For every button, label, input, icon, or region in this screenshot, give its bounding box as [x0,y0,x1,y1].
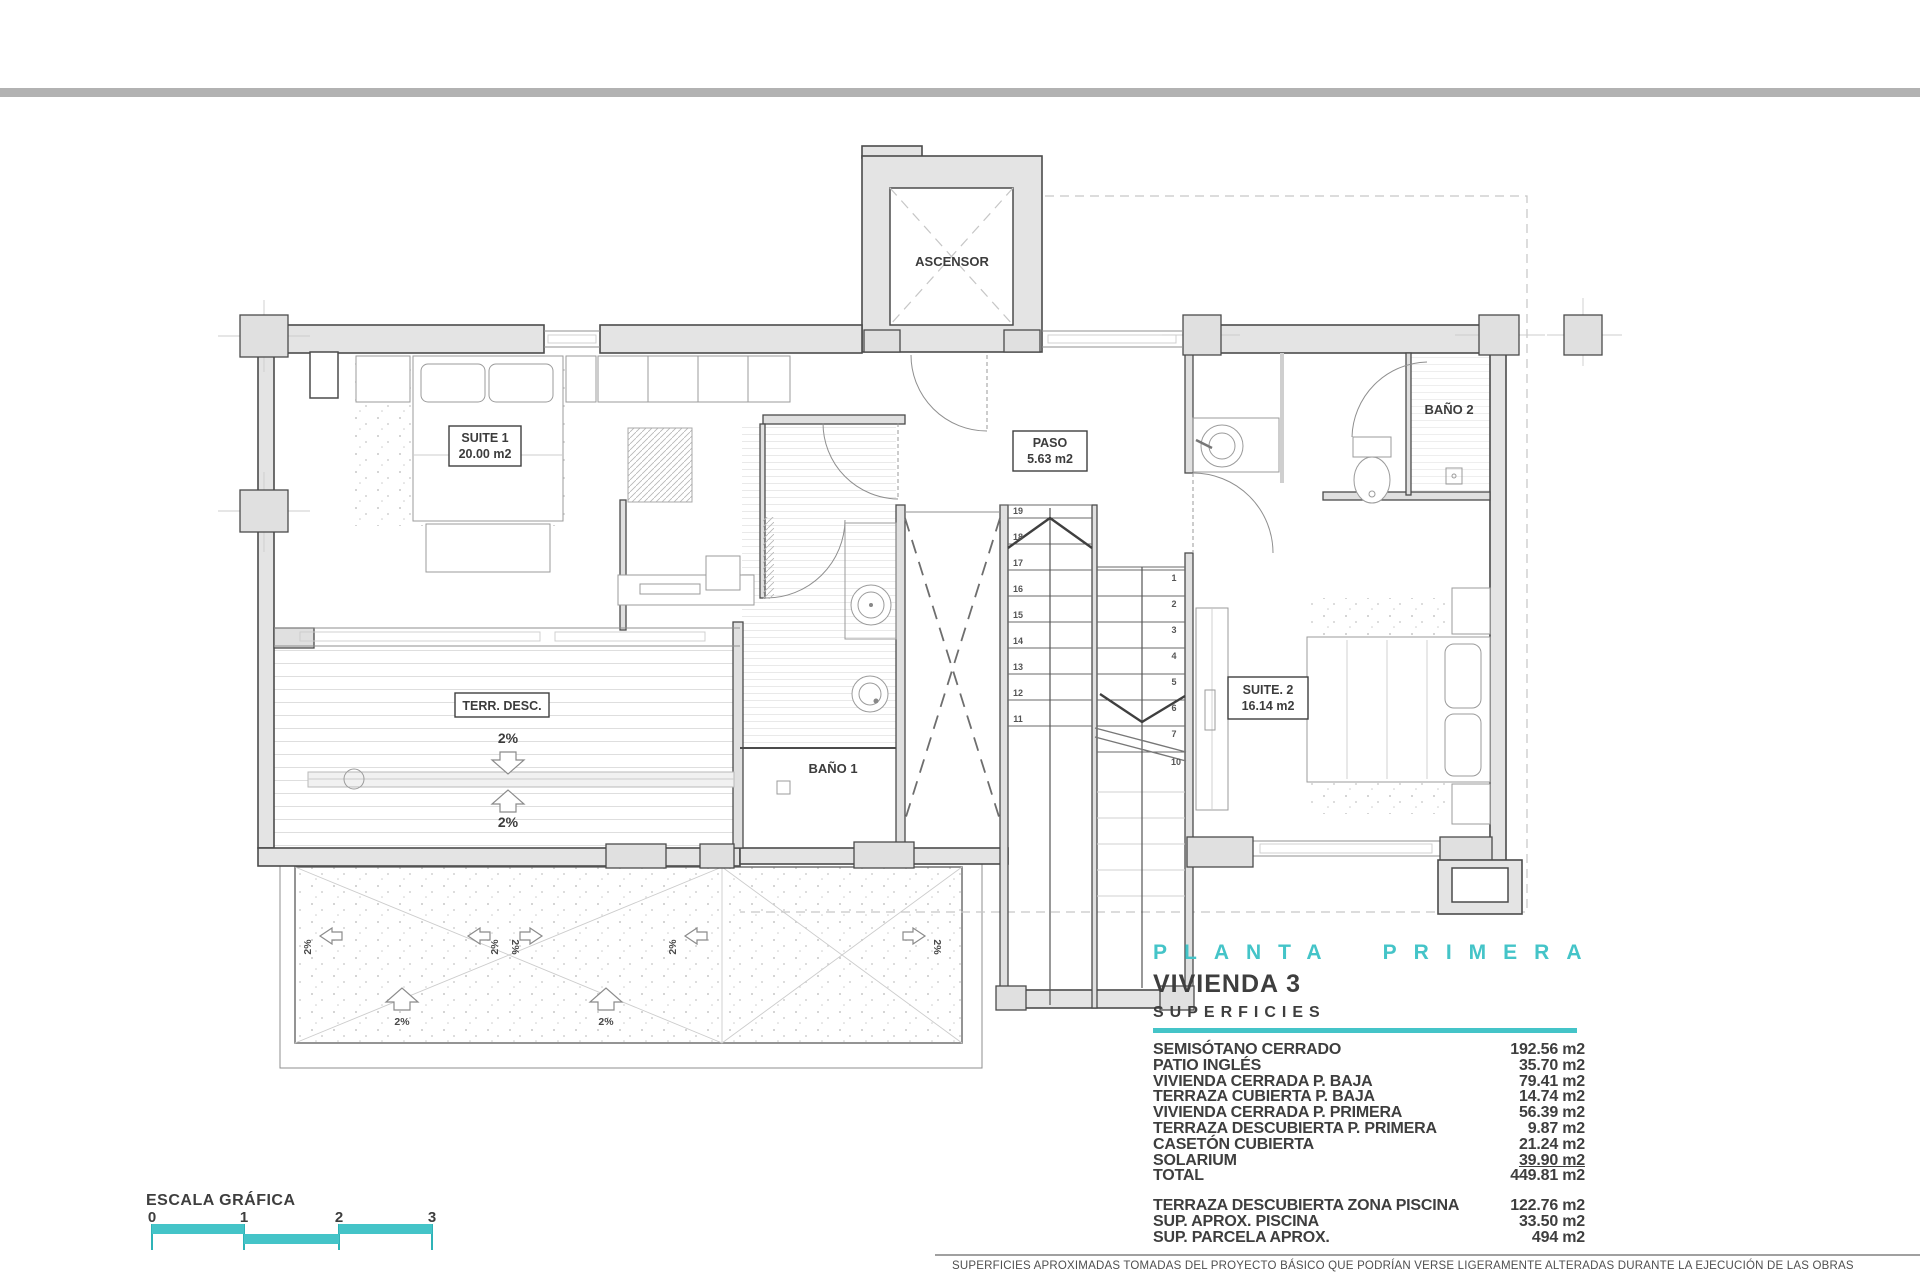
suite1-furniture [310,352,790,605]
table-row: VIVIENDA CERRADA P. PRIMERA56.39 m2 [1153,1105,1585,1121]
scale-bar: ESCALA GRÁFICA 0 1 2 3 [146,1192,466,1252]
table-row: PATIO INGLÉS35.70 m2 [1153,1058,1585,1074]
patio-slope-label: 2% [302,939,314,955]
table-row: SEMISÓTANO CERRADO192.56 m2 [1153,1042,1585,1058]
terrace-slope-label: 2% [498,730,519,746]
scale-segments [146,1224,466,1252]
table-row: SUP. PARCELA APROX.494 m2 [1153,1230,1585,1246]
paso-area: 5.63 m2 [1027,452,1073,466]
svg-text:6: 6 [1171,703,1176,713]
bathroom2-label: BAÑO 2 [1424,402,1473,417]
svg-text:19: 19 [1013,506,1023,516]
teal-rule [1153,1028,1577,1033]
svg-text:16: 16 [1013,584,1023,594]
floor-plan-drawing: ASCENSOR [0,0,1920,1280]
patio-slope-label: 2% [509,939,521,955]
svg-text:13: 13 [1013,662,1023,672]
scale-numbers: 0 1 2 3 [146,1209,466,1224]
unit-title: VIVIENDA 3 [1153,971,1585,997]
blueprint-page: ASCENSOR [0,0,1920,1280]
svg-text:5: 5 [1171,677,1176,687]
svg-text:3: 3 [1171,625,1176,635]
table-row: CASETÓN CUBIERTA21.24 m2 [1153,1137,1585,1153]
elevator-label: ASCENSOR [915,254,989,269]
patio-slope-label: 2% [489,939,501,955]
patio-slope-label: 2% [598,1016,614,1028]
table-row: TERRAZA CUBIERTA P. BAJA14.74 m2 [1153,1089,1585,1105]
suite1-area: 20.00 m2 [459,447,512,461]
terrace-label: TERR. DESC. [462,699,541,713]
patio-slope-label: 2% [394,1016,410,1028]
patio-solarium [280,852,982,1068]
svg-text:7: 7 [1171,729,1176,739]
svg-text:14: 14 [1013,636,1023,646]
svg-text:10: 10 [1171,757,1181,767]
suite2-area: 16.14 m2 [1242,699,1295,713]
terrace-slope-label: 2% [498,814,519,830]
suite1-label: SUITE 1 [461,431,508,445]
svg-text:12: 12 [1013,688,1023,698]
patio-slope-label: 2% [931,939,943,955]
svg-text:1: 1 [1171,573,1176,583]
table-row: TERRAZA DESCUBIERTA P. PRIMERA9.87 m2 [1153,1121,1585,1137]
svg-text:4: 4 [1171,651,1176,661]
svg-text:2: 2 [1171,599,1176,609]
surfaces-table: SEMISÓTANO CERRADO192.56 m2 PATIO INGLÉS… [1153,1042,1585,1246]
floor-title: PLANTA PRIMERA [1153,942,1585,963]
svg-text:17: 17 [1013,558,1023,568]
surfaces-heading: SUPERFICIES [1153,1005,1585,1021]
patio-slope-label: 2% [667,939,679,955]
suite2-label: SUITE. 2 [1243,683,1294,697]
footer-divider [935,1254,1920,1256]
bathroom1-label: BAÑO 1 [808,761,857,776]
title-block: PLANTA PRIMERA VIVIENDA 3 SUPERFICIES SE… [1153,942,1585,1246]
table-row: SUP. APROX. PISCINA33.50 m2 [1153,1214,1585,1230]
svg-text:15: 15 [1013,610,1023,620]
svg-text:18: 18 [1013,532,1023,542]
table-row: TOTAL449.81 m2 [1153,1168,1585,1184]
scale-label: ESCALA GRÁFICA [146,1192,466,1209]
table-row: SOLARIUM39.90 m2 [1153,1153,1585,1169]
elevator-shaft: ASCENSOR [862,146,1042,352]
table-row: VIVIENDA CERRADA P. BAJA79.41 m2 [1153,1074,1585,1090]
stair-void-cross [905,518,1000,820]
svg-text:11: 11 [1013,714,1023,724]
disclaimer-note: SUPERFICIES APROXIMADAS TOMADAS DEL PROY… [952,1260,1917,1272]
bathroom2-shower-tiles [1411,353,1490,492]
table-row: TERRAZA DESCUBIERTA ZONA PISCINA122.76 m… [1153,1198,1585,1214]
paso-label: PASO [1033,436,1068,450]
